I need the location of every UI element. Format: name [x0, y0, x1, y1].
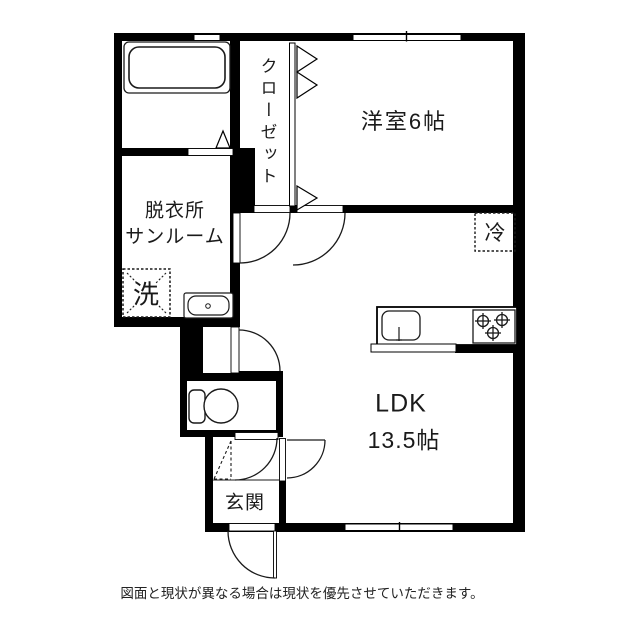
wall-top	[114, 33, 525, 41]
dressing-door-opening	[254, 206, 290, 213]
floor-plan-drawing	[0, 0, 640, 640]
bath-door-opening	[188, 149, 233, 156]
wall-ldk-top-right	[343, 205, 514, 213]
bath-window	[194, 35, 220, 41]
ldk-size-label: 13.5帖	[368, 421, 441, 455]
washbasin-icon	[184, 293, 233, 318]
hall-genkan-door-opening	[235, 433, 278, 440]
dressing-room-label-line2: サンルーム	[125, 222, 224, 249]
entrance-door-opening	[229, 524, 275, 532]
entrance-door-arc	[228, 531, 275, 578]
wall-genkan-left	[205, 437, 213, 532]
genkan-ldk-door-arc	[287, 440, 325, 478]
wall-nook-left-block	[180, 317, 203, 377]
counter-front-edge	[371, 344, 456, 352]
stove-icon	[473, 310, 515, 343]
closet-fold-top-2	[297, 72, 317, 98]
toilet-door-leaf	[231, 327, 239, 373]
genkan-step-marks	[213, 441, 279, 480]
washer-label: 洗	[133, 275, 159, 312]
dressing-door-arc	[240, 213, 290, 263]
closet-fold-top-1	[297, 46, 317, 72]
wall-right	[513, 33, 525, 532]
toilet-bowl	[204, 389, 238, 423]
toilet-tank	[189, 390, 205, 423]
washbasin-faucet	[206, 304, 211, 309]
bathtub-inner	[129, 47, 225, 88]
floor-plan: 脱衣所 サンルーム クローゼット 洋室6帖 LDK 13.5帖 玄関 洗 冷 図…	[0, 0, 640, 640]
entrance-door-leaf	[274, 531, 277, 578]
genkan-label: 玄関	[225, 488, 265, 515]
closet-label: クローゼット	[255, 57, 280, 189]
bathtub-icon	[124, 42, 230, 93]
bath-door-triangle	[216, 131, 230, 148]
wall-genkan-ldk-lower	[279, 481, 286, 525]
hall-genkan-door-arc	[235, 438, 277, 480]
genkan-dashed-diagonal	[214, 441, 231, 479]
genkan-ldk-door-frame	[280, 439, 286, 482]
dressing-door-leaf	[233, 213, 240, 263]
nook-floor	[203, 327, 231, 373]
toilet-icon	[189, 389, 238, 423]
closet-track	[290, 43, 296, 206]
ldk-label: LDK	[375, 390, 427, 419]
walls	[114, 33, 525, 532]
kitchen-counter	[371, 307, 517, 352]
wall-left	[114, 33, 122, 327]
disclaimer-note: 図面と現状が異なる場合は現状を優先させていただきます。	[120, 582, 483, 602]
wall-bath-closet	[230, 33, 240, 148]
fridge-label: 冷	[485, 217, 506, 247]
toilet-door-arc	[239, 330, 280, 371]
wall-closet-block	[230, 148, 255, 213]
kitchen-sink-icon	[382, 311, 420, 341]
western-door-arc	[293, 213, 345, 265]
western-room-label: 洋室6帖	[361, 104, 447, 136]
dressing-room-label-line1: 脱衣所	[145, 196, 205, 223]
sink-basin	[382, 311, 420, 340]
closet-fold-marks	[297, 46, 317, 210]
